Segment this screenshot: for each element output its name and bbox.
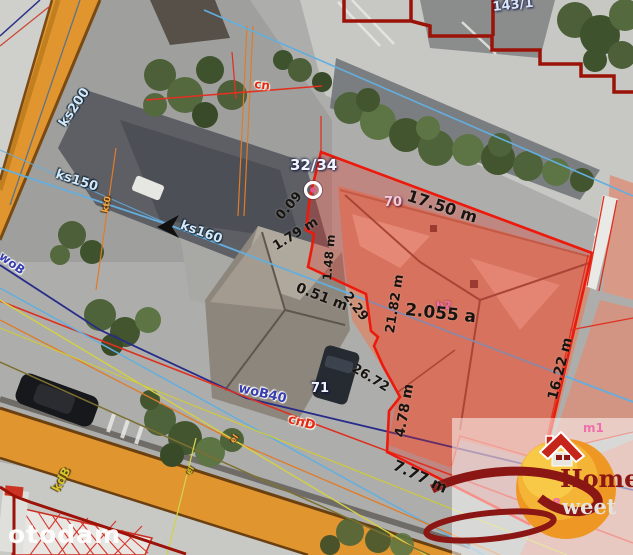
survey-point-icon [304,181,323,200]
logo-word-home: Home [560,464,633,493]
logo-word-sweet: weet [561,494,617,519]
logo: m1 18 Home weet [425,418,633,555]
cadastral-aerial-map: m1 18 Home weet ks200 ks150 ks160 kt0 cn… [0,0,633,555]
building-label-m1: m1 [583,421,604,435]
aerial-basemap: m1 18 Home weet [0,0,633,555]
